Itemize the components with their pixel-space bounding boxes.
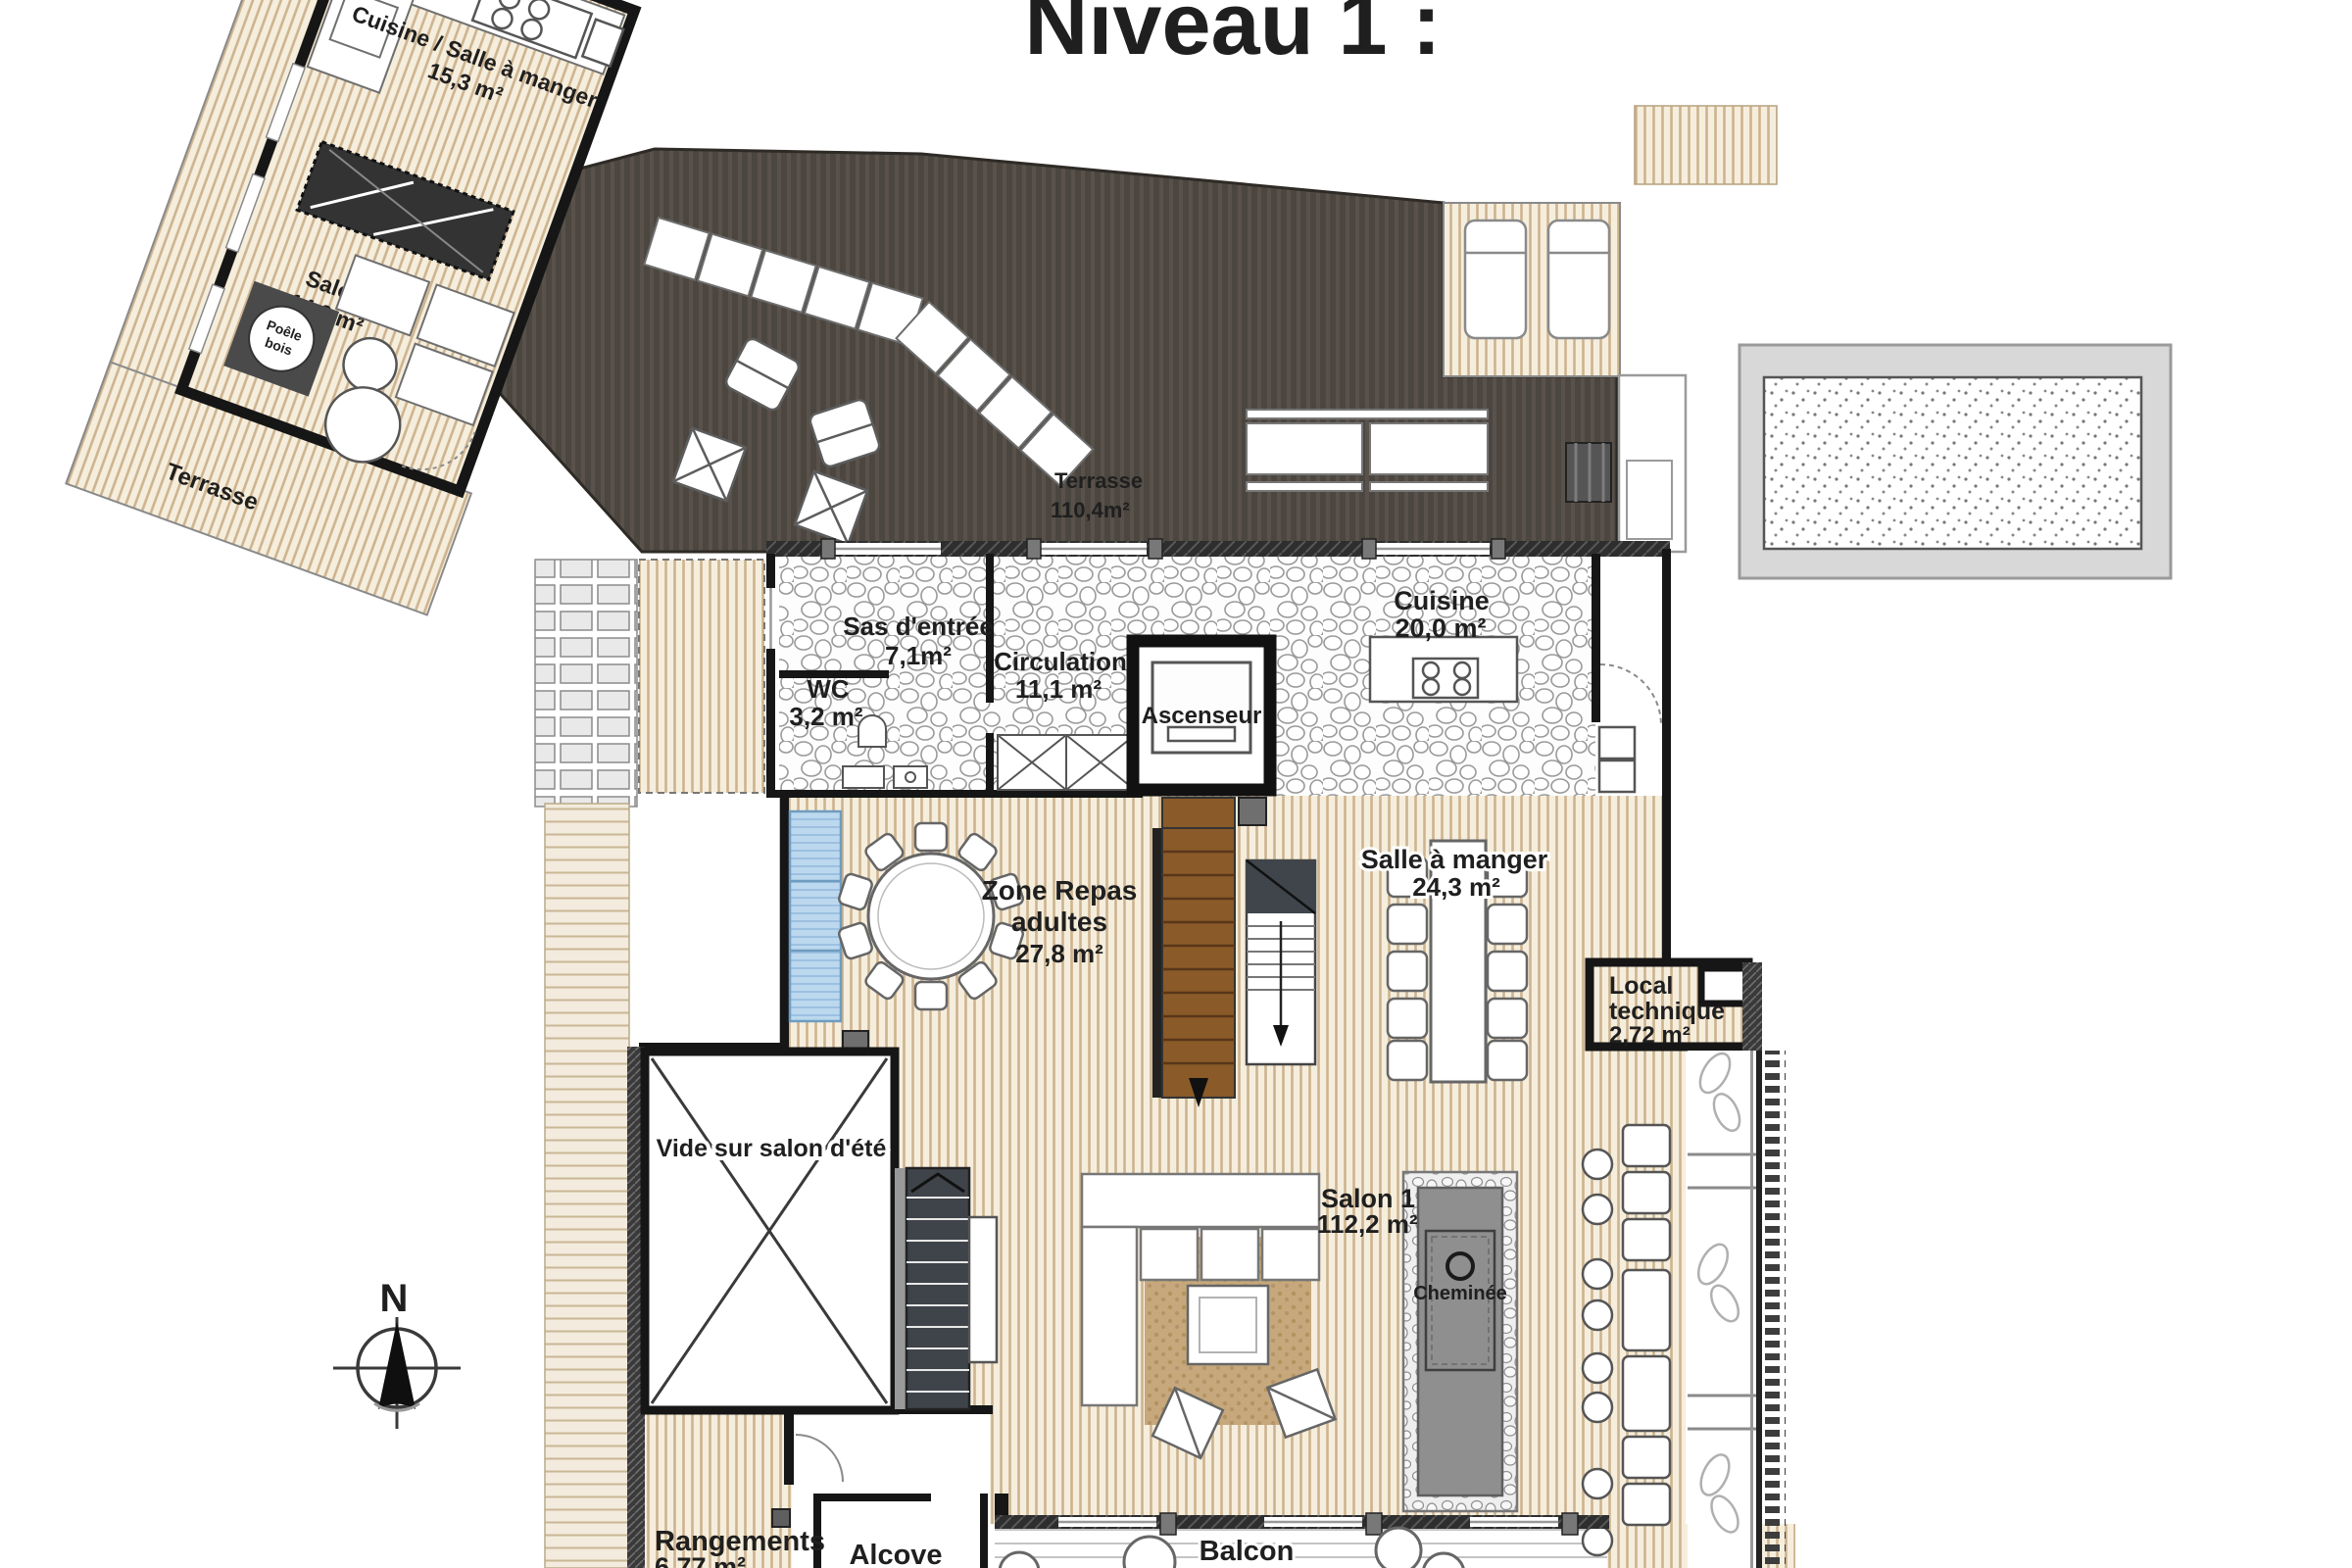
floor-plan-canvas: Terrasse 110,4m² Terrasse [0,0,2352,1568]
wc-label-name: WC [807,674,850,704]
circulation-label-area: 11,1 m² [1015,674,1102,704]
north-arrow: N [333,1277,461,1429]
alcove-label: Alcove [849,1540,942,1568]
fireplace-label: Cheminée [1413,1283,1507,1304]
kitchen-island [1370,637,1517,702]
coffee-table [1188,1286,1268,1364]
main-stair-brown [1152,828,1235,1107]
terrace-label-area: 110,4m² [1051,498,1130,522]
technical-label-2: technique [1609,998,1725,1025]
entry-label-name: Sas d'entrée [843,612,994,641]
elevator-landing-pad [1239,798,1266,825]
circulation-label-name: Circulation [994,647,1127,676]
terrace-label-name: Terrasse [1054,468,1143,493]
pergola-strip [1635,106,1777,184]
main-building: Ascenseur [627,539,1795,1568]
main-terrace: Terrasse 110,4m² [446,106,2171,578]
terrace-stair-inner [1627,461,1672,539]
wc-label-area: 3,2 m² [789,702,862,731]
fireplace: Cheminée [1403,1172,1517,1511]
east-corridor [1688,1051,1760,1568]
storage-door-post [784,1414,794,1485]
living-label-area: 112,2 m² [1317,1209,1418,1239]
entry-closet [998,735,1135,790]
balcony-label: Balcon [1200,1536,1295,1567]
main-stair-gray [1247,860,1315,1064]
sideboard [1623,1125,1670,1525]
technical-label-3: 2,72 m² [1609,1022,1690,1049]
north-label: N [380,1277,409,1320]
west-deck [545,804,629,1568]
dining-adults-label-1: Zone Repas [982,875,1138,906]
storage-label-area: 6,77 m² [655,1552,746,1568]
kitchen-label-name: Cuisine [1394,586,1490,615]
stone-wall-patch [535,560,637,807]
void-room: Vide sur salon d'été [645,1052,895,1410]
kitchen-east-wall [1592,554,1600,722]
storage-dark-square [772,1509,790,1527]
elevator: Ascenseur [1133,641,1270,790]
north-needle-icon [378,1321,416,1409]
floor-balcony [995,1527,1607,1568]
east-wall-hatch [1742,962,1762,1051]
technical-label-1: Local [1609,972,1673,1000]
elevator-label: Ascenseur [1142,703,1262,729]
page-title: Niveau 1 : [1024,0,1441,73]
entry-window [766,588,775,649]
dining-label-name: Salle à manger [1361,845,1548,874]
fridge [1599,727,1635,792]
dining-adults-label-3: 27,8 m² [1015,939,1103,968]
gravel-pad [1739,345,2171,578]
void-label: Vide sur salon d'été [657,1135,887,1162]
kitchen-label-area: 20,0 m² [1395,613,1486,643]
dining-adults-label-2: adultes [1011,906,1107,937]
dining-label-area: 24,3 m² [1412,872,1500,902]
entry-label-area: 7,1m² [885,641,952,670]
entry-walkway [639,560,764,793]
